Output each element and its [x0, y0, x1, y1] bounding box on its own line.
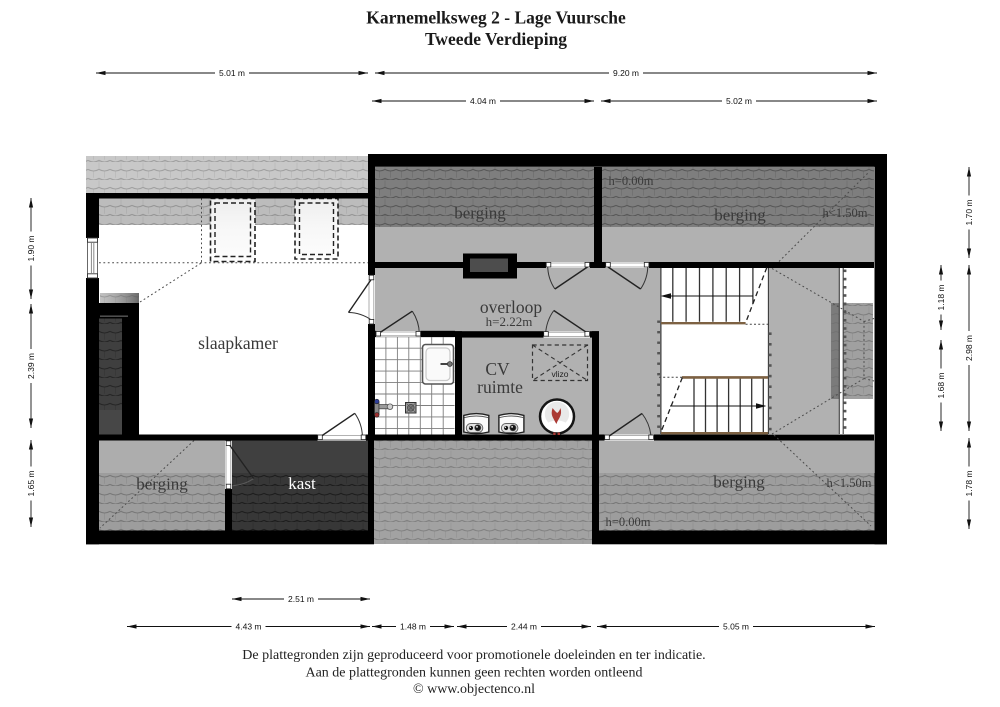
svg-text:ruimte: ruimte: [477, 377, 523, 397]
svg-text:9.20 m: 9.20 m: [613, 68, 639, 78]
svg-text:1.70 m: 1.70 m: [964, 200, 974, 226]
svg-text:h=0.00m: h=0.00m: [606, 515, 651, 529]
svg-text:vlizo: vlizo: [551, 369, 568, 379]
svg-text:1.68 m: 1.68 m: [936, 373, 946, 399]
svg-text:h=0.00m: h=0.00m: [609, 174, 654, 188]
svg-text:berging: berging: [454, 204, 506, 223]
svg-text:5.01 m: 5.01 m: [219, 68, 245, 78]
svg-text:5.05 m: 5.05 m: [723, 622, 749, 632]
svg-text:kast: kast: [288, 474, 316, 493]
svg-text:© www.objectenco.nl: © www.objectenco.nl: [413, 682, 535, 697]
svg-text:2.44 m: 2.44 m: [511, 622, 537, 632]
svg-text:2.98 m: 2.98 m: [964, 335, 974, 361]
svg-text:berging: berging: [136, 475, 188, 494]
svg-text:h<1.50m: h<1.50m: [823, 206, 868, 220]
svg-text:1.18 m: 1.18 m: [936, 285, 946, 311]
svg-text:Aan de plattegronden kunnen ge: Aan de plattegronden kunnen geen rechten…: [305, 666, 642, 681]
svg-text:1.48 m: 1.48 m: [400, 622, 426, 632]
svg-text:h<1.50m: h<1.50m: [827, 476, 872, 490]
svg-text:Karnemelksweg 2 - Lage Vuursch: Karnemelksweg 2 - Lage Vuursche: [366, 8, 626, 28]
svg-text:4.43 m: 4.43 m: [236, 622, 262, 632]
svg-text:Tweede Verdieping: Tweede Verdieping: [425, 29, 567, 49]
svg-text:4.04 m: 4.04 m: [470, 96, 496, 106]
svg-text:5.02 m: 5.02 m: [726, 96, 752, 106]
svg-text:1.90 m: 1.90 m: [26, 236, 36, 262]
svg-text:h=2.22m: h=2.22m: [486, 314, 533, 329]
svg-text:De plattegronden zijn geproduc: De plattegronden zijn geproduceerd voor …: [242, 648, 705, 663]
svg-text:1.78 m: 1.78 m: [964, 471, 974, 497]
svg-text:berging: berging: [713, 473, 765, 492]
svg-text:CV: CV: [485, 359, 510, 379]
svg-text:berging: berging: [714, 206, 766, 225]
svg-text:slaapkamer: slaapkamer: [198, 333, 278, 353]
svg-text:2.51 m: 2.51 m: [288, 594, 314, 604]
svg-text:1.65 m: 1.65 m: [26, 471, 36, 497]
svg-text:2.39 m: 2.39 m: [26, 353, 36, 379]
